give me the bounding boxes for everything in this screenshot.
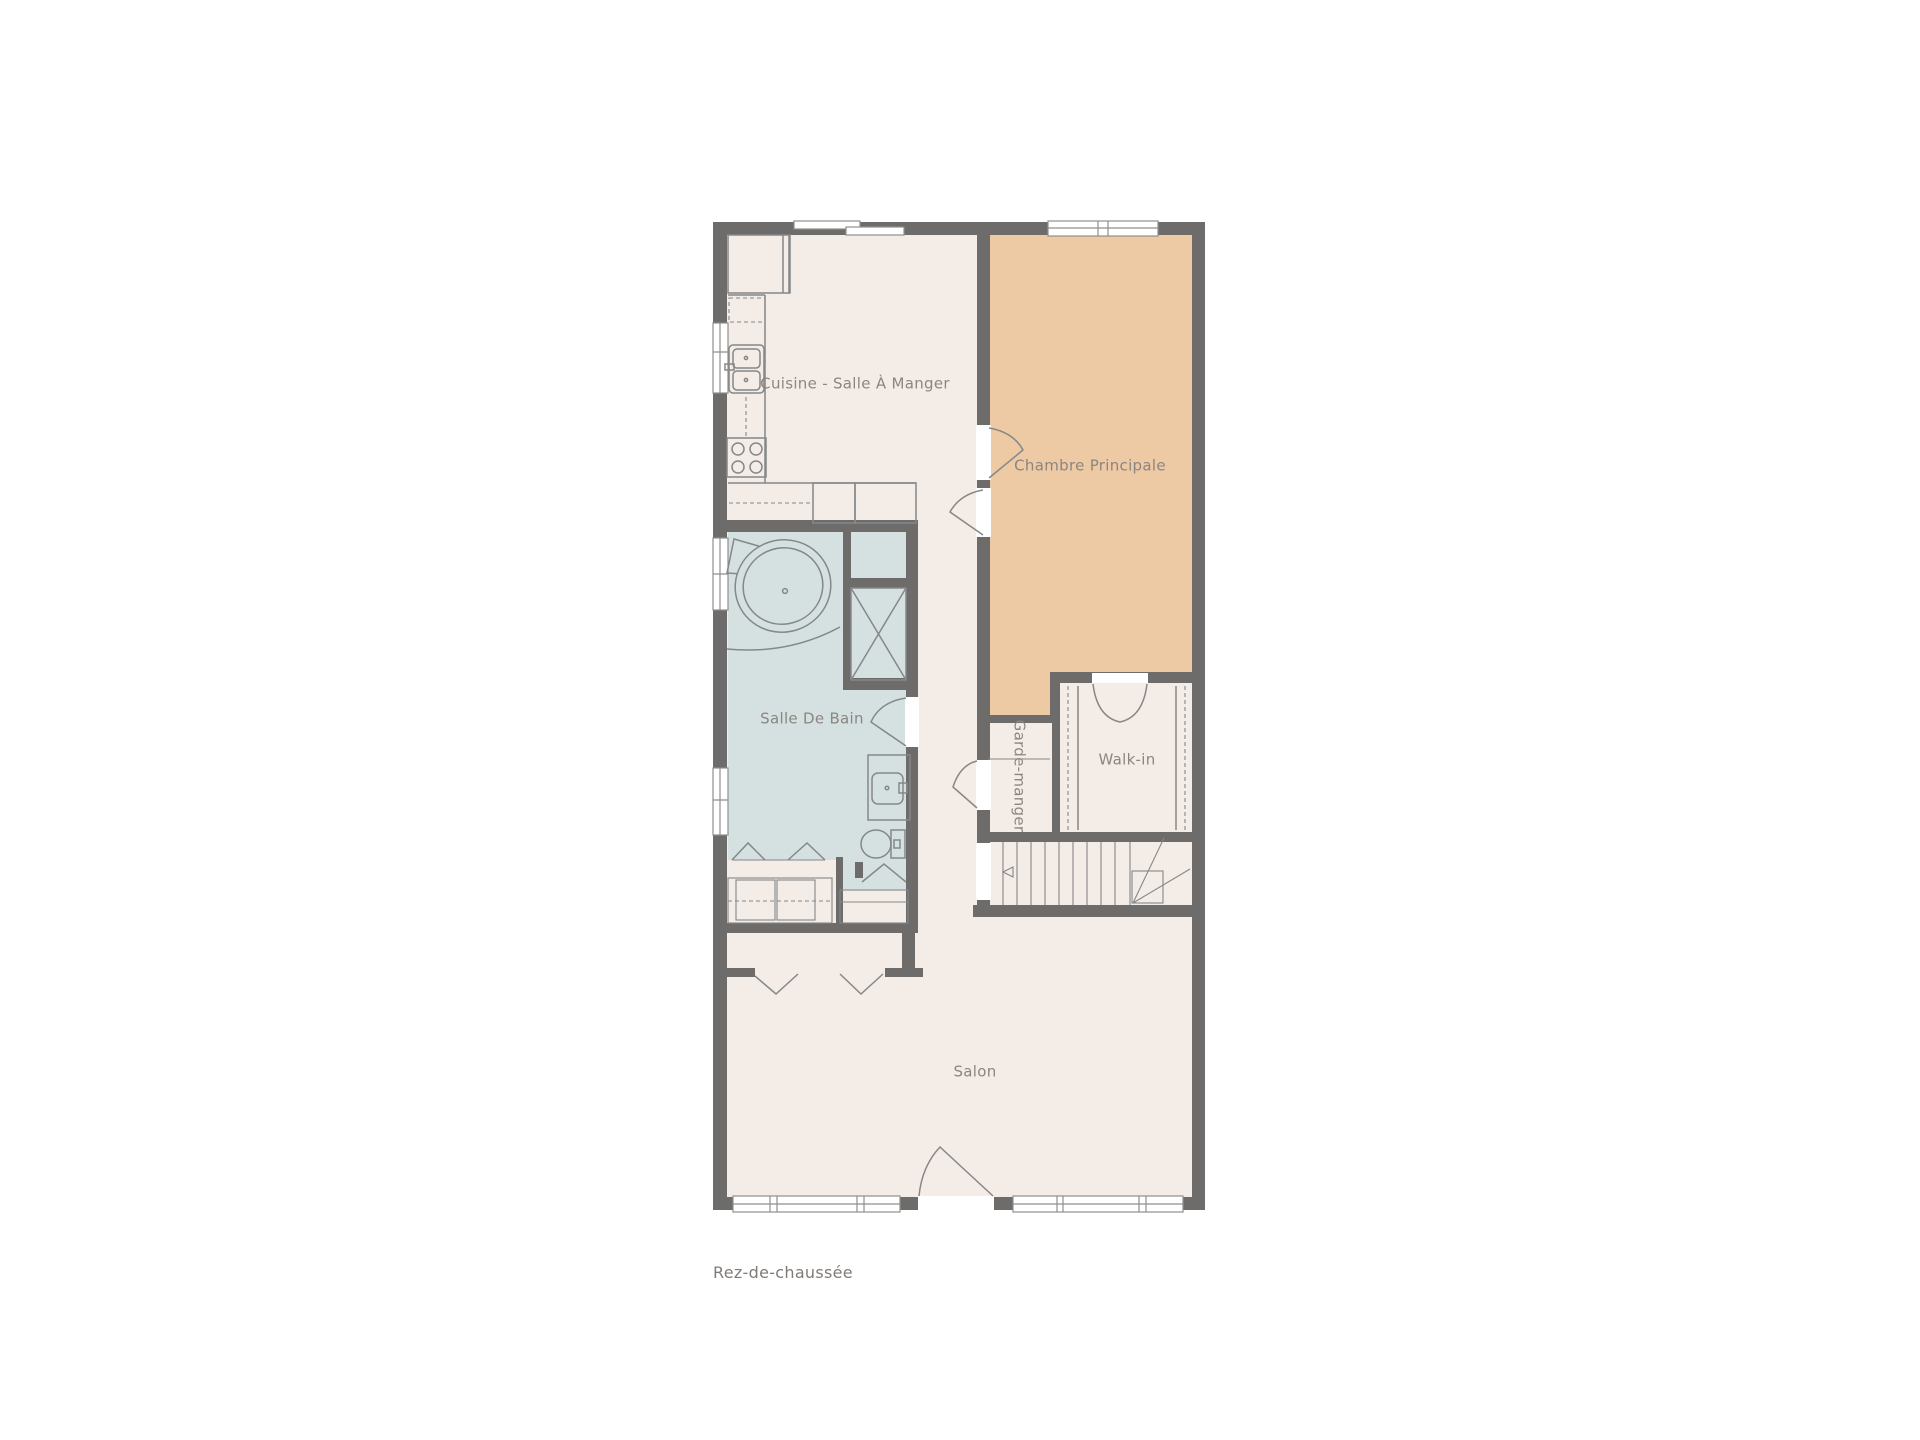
living-window-left — [733, 1196, 900, 1212]
living-door-opening — [918, 1196, 994, 1212]
label-walkin: Walk-in — [1098, 751, 1155, 769]
bathroom-window-1 — [713, 538, 728, 610]
label-living: Salon — [953, 1063, 996, 1081]
floor-plan: Cuisine - Salle À Manger Chambre Princip… — [0, 0, 1920, 1440]
kitchen-window-sash-2 — [846, 227, 904, 235]
floor-plan-page: Cuisine - Salle À Manger Chambre Princip… — [0, 0, 1920, 1440]
label-bathroom: Salle De Bain — [760, 710, 864, 728]
living-window-right — [1013, 1196, 1183, 1212]
bathroom-window-2 — [713, 768, 728, 835]
label-bedroom: Chambre Principale — [1014, 457, 1166, 475]
bedroom-door-opening — [976, 425, 991, 480]
bathroom-door-opening — [905, 697, 919, 747]
label-kitchen: Cuisine - Salle À Manger — [760, 374, 950, 393]
plan-title: Rez-de-chaussée — [713, 1263, 853, 1282]
bedroom-floor — [990, 235, 1192, 715]
bedroom-window — [1048, 221, 1158, 236]
label-pantry: Garde-manger — [1011, 720, 1029, 833]
pantry-door-opening — [976, 760, 991, 810]
stairs-opening — [976, 843, 991, 900]
kitchen-side-window — [713, 323, 728, 393]
walkin-door-opening — [1092, 673, 1148, 683]
hall-door-opening — [976, 488, 991, 537]
